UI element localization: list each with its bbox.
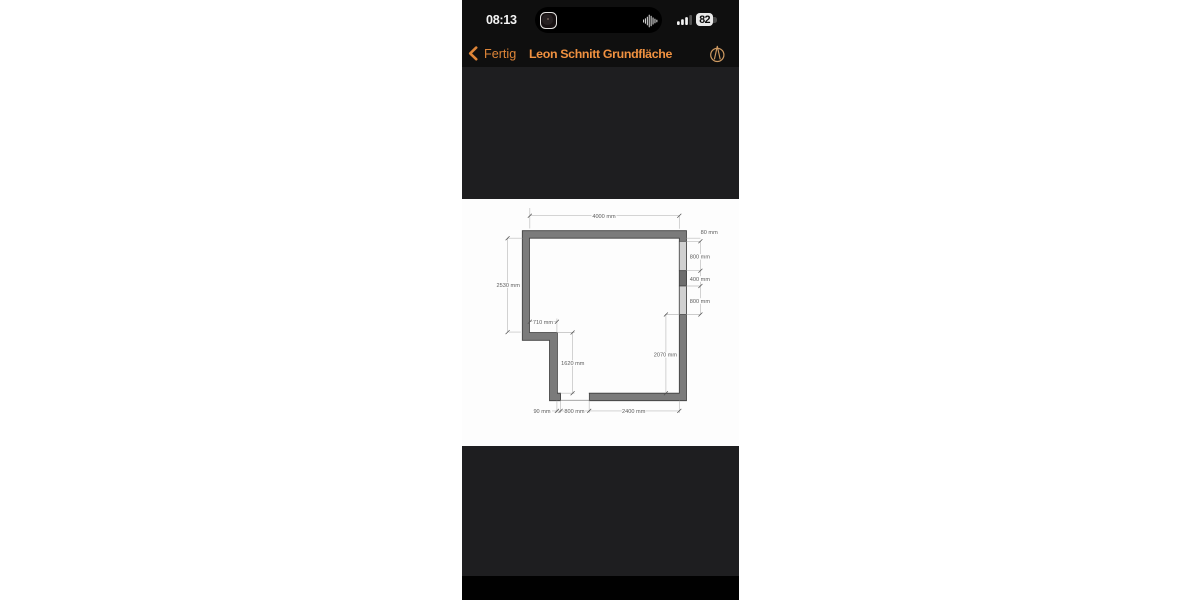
svg-text:2530 mm: 2530 mm xyxy=(497,283,521,289)
svg-text:80 mm: 80 mm xyxy=(701,230,718,236)
svg-text:2070 mm: 2070 mm xyxy=(654,353,678,359)
svg-text:2400 mm: 2400 mm xyxy=(622,409,646,415)
svg-text:800 mm: 800 mm xyxy=(690,299,711,305)
svg-text:1620 mm: 1620 mm xyxy=(561,361,585,367)
svg-text:90 mm: 90 mm xyxy=(533,409,550,415)
svg-text:4000 mm: 4000 mm xyxy=(592,214,616,220)
svg-text:710 mm: 710 mm xyxy=(533,320,554,326)
svg-text:400 mm: 400 mm xyxy=(690,277,711,283)
svg-text:800 mm: 800 mm xyxy=(690,255,711,261)
svg-text:800 mm: 800 mm xyxy=(564,409,585,415)
